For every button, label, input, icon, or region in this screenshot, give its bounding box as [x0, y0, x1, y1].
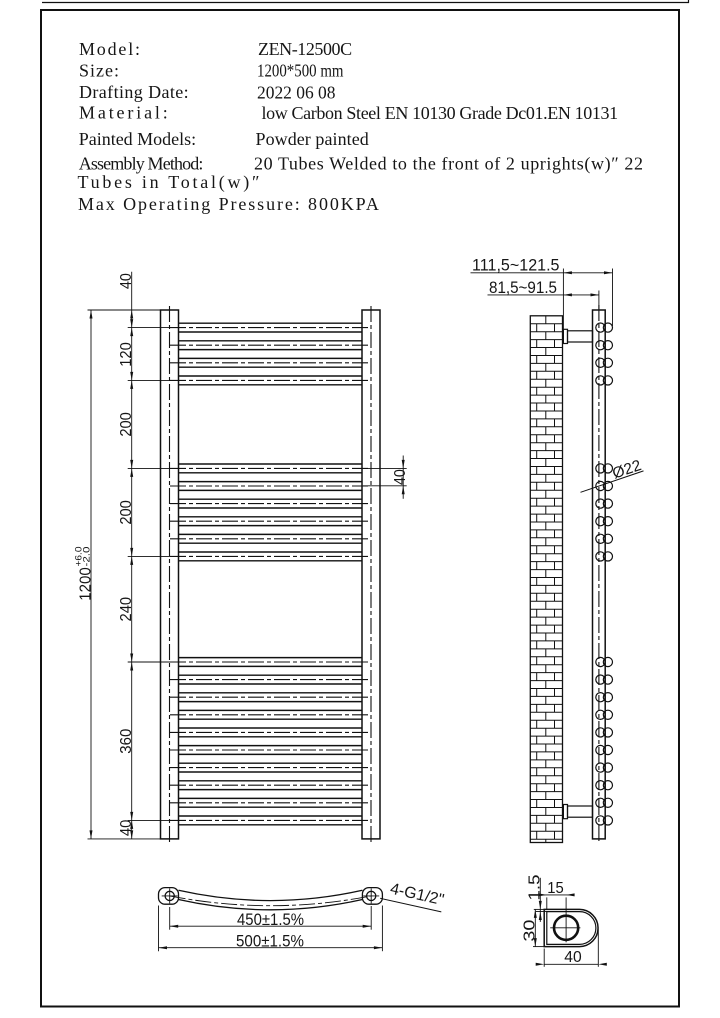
- svg-text:Material:: Material:: [79, 103, 171, 123]
- svg-text:200: 200: [118, 412, 135, 437]
- svg-text:Assembly Method:: Assembly Method:: [79, 154, 203, 174]
- svg-text:Painted Models:: Painted Models:: [79, 129, 197, 149]
- svg-text:4-G1/2": 4-G1/2": [388, 881, 445, 909]
- svg-text:Powder painted: Powder painted: [256, 129, 369, 149]
- svg-text:40: 40: [118, 273, 135, 289]
- svg-text:40: 40: [118, 820, 135, 837]
- svg-text:Ø22: Ø22: [610, 457, 643, 483]
- svg-text:low Carbon Steel EN 10130 Gra: low Carbon Steel EN 10130 Grade Dc01.EN …: [262, 103, 618, 123]
- svg-text:30: 30: [522, 919, 539, 941]
- svg-text:20 Tubes Welded to the front o: 20 Tubes Welded to the front of 2 uprigh…: [254, 154, 644, 175]
- svg-text:Drafting Date:: Drafting Date:: [79, 82, 189, 102]
- svg-text:1.5: 1.5: [526, 875, 543, 901]
- svg-text:Tubes in Total(w)″: Tubes in Total(w)″: [78, 172, 263, 193]
- svg-text:1200*500 mm: 1200*500 mm: [257, 61, 344, 81]
- svg-text:2022 06 08: 2022 06 08: [257, 83, 336, 103]
- svg-text:120: 120: [118, 342, 135, 367]
- svg-text:40: 40: [564, 949, 582, 966]
- svg-text:450±1.5%: 450±1.5%: [237, 911, 304, 929]
- svg-text:Model:: Model:: [79, 39, 142, 59]
- svg-text:81,5~91.5: 81,5~91.5: [489, 279, 557, 297]
- svg-text:Size:: Size:: [79, 61, 120, 81]
- svg-text:111,5~121.5: 111,5~121.5: [472, 257, 560, 275]
- svg-text:1200: 1200: [78, 567, 95, 601]
- svg-text:-2.0: -2.0: [82, 547, 92, 567]
- svg-text:40: 40: [392, 469, 409, 485]
- svg-text:200: 200: [118, 500, 135, 525]
- svg-text:ZEN-12500C: ZEN-12500C: [258, 39, 352, 59]
- svg-text:360: 360: [118, 729, 135, 754]
- svg-text:15: 15: [547, 880, 564, 897]
- svg-text:Max Operating Pressure: 800KPA: Max Operating Pressure: 800KPA: [78, 194, 381, 214]
- svg-text:500±1.5%: 500±1.5%: [236, 932, 304, 950]
- svg-text:240: 240: [118, 597, 135, 622]
